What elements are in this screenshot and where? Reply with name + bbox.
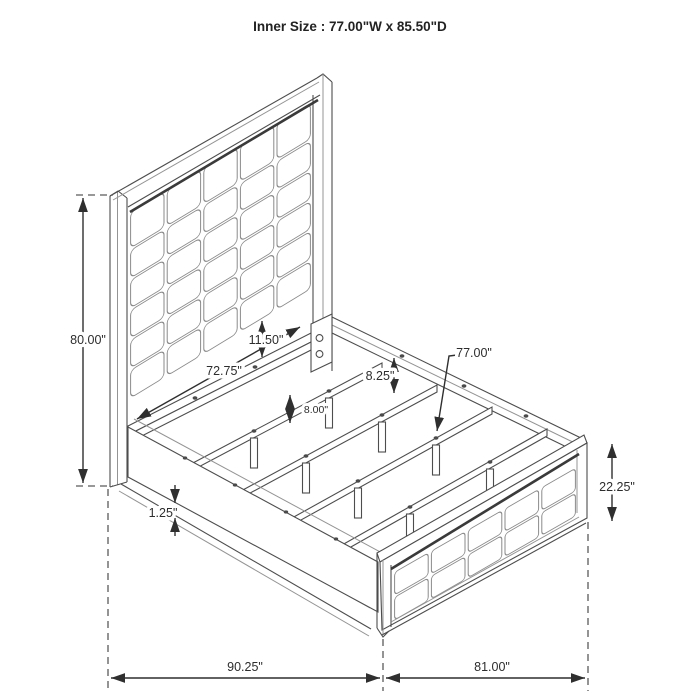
dim-headboard-height: 80.00" xyxy=(70,195,113,486)
dim-rail-top-to-slat: 8.25" xyxy=(366,358,395,393)
svg-text:8.00": 8.00" xyxy=(304,404,328,416)
diagram-canvas: Inner Size : 77.00"W x 85.50"D xyxy=(0,0,700,700)
svg-text:1.25": 1.25" xyxy=(149,506,178,520)
svg-text:11.50": 11.50" xyxy=(249,333,284,347)
rail-bracket xyxy=(311,314,332,372)
svg-text:81.00": 81.00" xyxy=(474,660,510,674)
diagram-title: Inner Size : 77.00"W x 85.50"D xyxy=(253,19,447,34)
dim-footboard-height: 22.25" xyxy=(599,444,635,521)
svg-text:90.25": 90.25" xyxy=(227,660,263,674)
svg-text:72.75": 72.75" xyxy=(206,364,242,378)
dim-overall-width: 81.00" xyxy=(386,660,585,678)
bed-dimension-diagram: Inner Size : 77.00"W x 85.50"D xyxy=(0,0,700,700)
svg-text:22.25": 22.25" xyxy=(599,480,635,494)
svg-text:77.00": 77.00" xyxy=(456,346,492,360)
svg-text:8.25": 8.25" xyxy=(366,369,395,383)
headboard-left-post xyxy=(110,191,127,487)
svg-text:80.00": 80.00" xyxy=(70,333,106,347)
dim-overall-depth: 90.25" xyxy=(111,660,380,678)
